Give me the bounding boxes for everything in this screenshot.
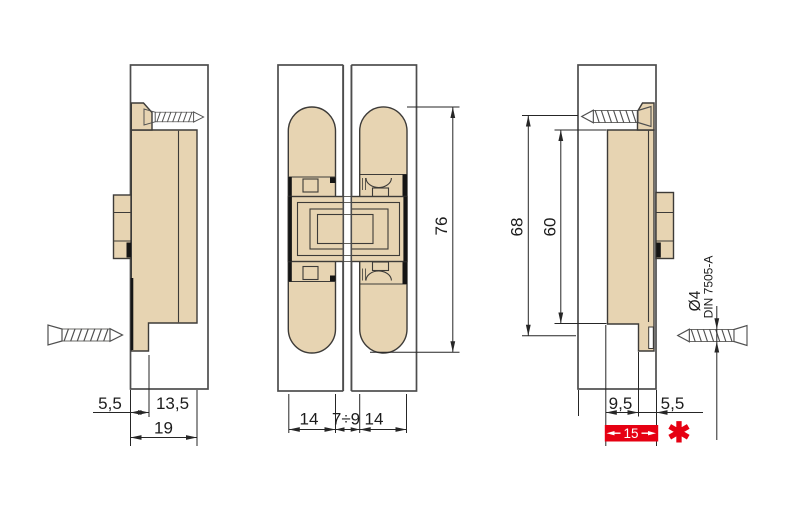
mounting-tabs [656, 193, 674, 259]
dim-label-offset: 5,5 [98, 394, 122, 413]
plate-edge-slot [649, 327, 654, 349]
dim-label-screw-axes: 68 [508, 218, 527, 237]
dim-label-body-right: 14 [365, 410, 384, 429]
dim-label-plate-length: 60 [541, 218, 560, 237]
door-gap [343, 64, 351, 392]
mounting-tabs [114, 195, 132, 259]
dim-label-highlight-total: 15 [623, 426, 638, 441]
dim-label-offset: 5,5 [661, 394, 685, 413]
hinge-plate [131, 130, 197, 351]
right-view: 68 60 9,5 5,5 15 ✱ [508, 65, 748, 448]
technical-drawing-page: 5,5 13,5 19 [0, 0, 800, 512]
footnote-asterisk: ✱ [667, 417, 690, 448]
highlight-dimension: 15 ✱ [605, 417, 691, 448]
screw-standard-label: DIN 7505-A [702, 256, 716, 319]
wood-screw-icon [678, 326, 747, 346]
dim-label-plate: 13,5 [156, 394, 189, 413]
dim-label-recess: 9,5 [609, 394, 633, 413]
hinge-plate [608, 130, 655, 351]
wood-screw-icon [48, 325, 123, 345]
dim-label-total: 19 [154, 419, 173, 438]
middle-view: 14 7÷9 14 76 [278, 64, 460, 433]
dim-label-gap: 7÷9 [332, 410, 360, 429]
concealed-hinge-drawing: 5,5 13,5 19 [0, 0, 800, 512]
left-view: 5,5 13,5 19 [48, 65, 208, 446]
dim-label-length: 76 [432, 217, 451, 236]
dim-label-body-left: 14 [300, 410, 319, 429]
